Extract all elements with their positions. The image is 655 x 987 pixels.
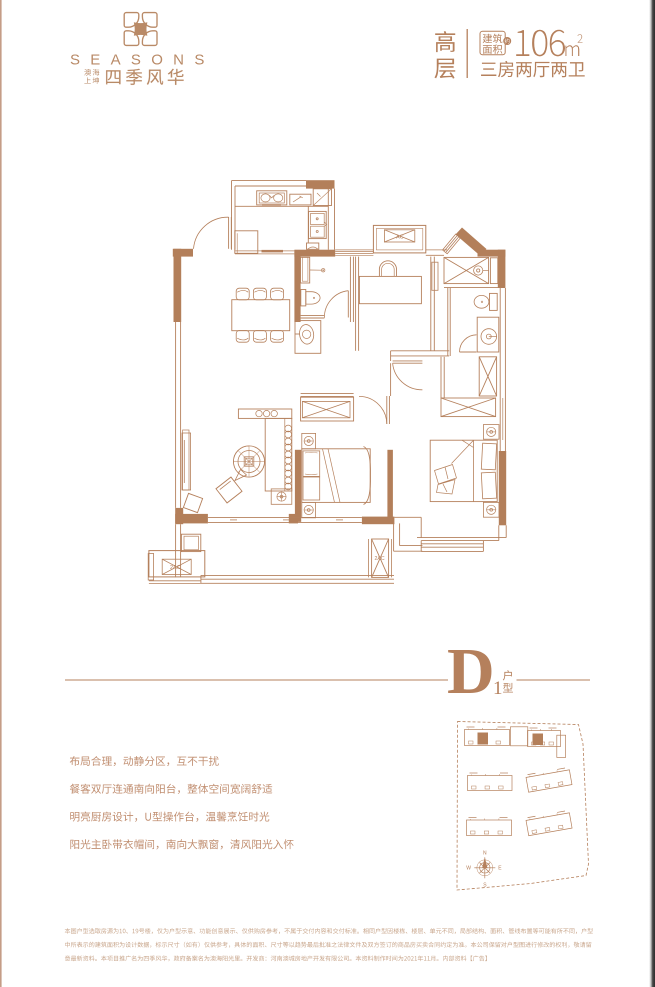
svg-text:2AC: 2AC [170, 565, 181, 571]
svg-text:N: N [483, 850, 487, 856]
svg-text:AC: AC [396, 234, 404, 240]
svg-text:1: 1 [493, 678, 503, 699]
svg-text:W: W [466, 866, 471, 872]
svg-text:SEASONS: SEASONS [70, 52, 215, 69]
svg-text:2AC: 2AC [375, 556, 385, 562]
svg-text:D: D [447, 635, 495, 708]
